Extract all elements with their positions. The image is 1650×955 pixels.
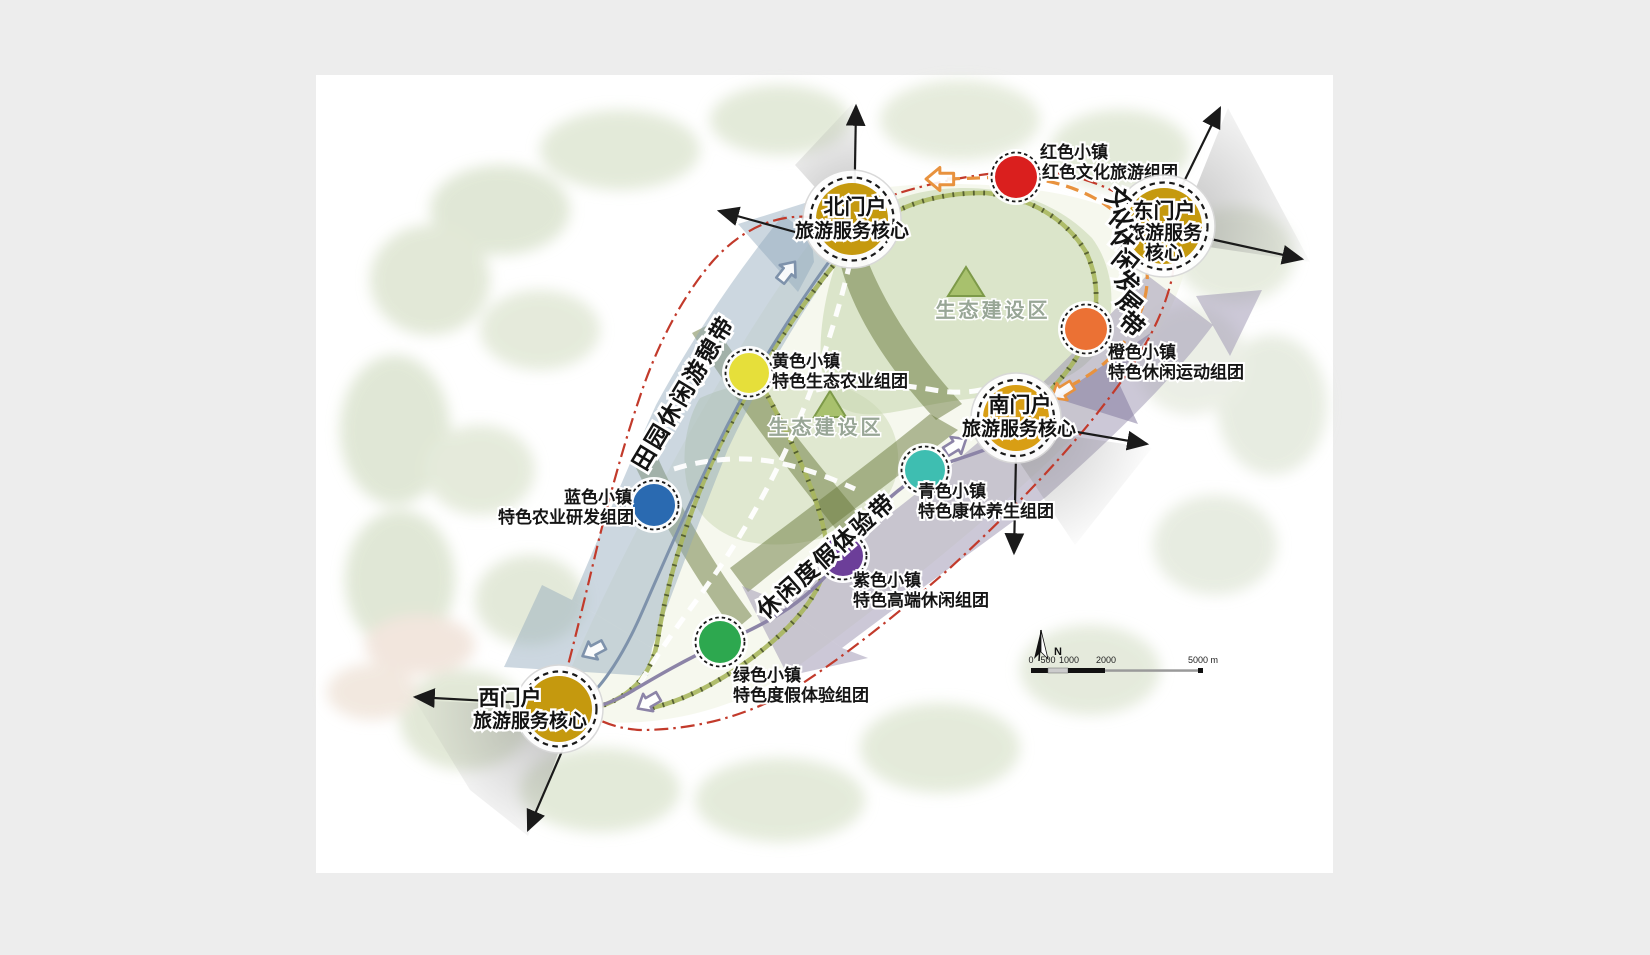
eco-zone-lower-label: 生态建设区	[769, 415, 884, 439]
eco-zone-upper-label: 生态建设区	[936, 298, 1051, 322]
town-blue-name: 蓝色小镇	[564, 487, 632, 507]
gateway-west-name: 西门户	[479, 686, 542, 710]
town-orange-name: 橙色小镇	[1108, 342, 1176, 362]
town-purple-desc: 特色高端休闲组团	[853, 590, 989, 610]
town-blue-desc: 特色农业研发组团	[498, 507, 634, 527]
planning-map-stage: 生态建设区 生态建设区 红色小镇 红色文化旅游组团 橙色小镇 特色休闲运动组团 …	[0, 0, 1650, 950]
town-green-desc: 特色度假体验组团	[733, 685, 869, 705]
gateway-south-sub: 旅游服务核心	[962, 417, 1076, 440]
town-green-name: 绿色小镇	[733, 665, 801, 685]
scale-tick-2000: 2000	[1096, 655, 1116, 665]
gateway-north-sub: 旅游服务核心	[795, 219, 909, 242]
scale-tick-500: 500	[1040, 655, 1055, 665]
gateway-west-sub: 旅游服务核心	[473, 709, 587, 732]
scale-tick-1000: 1000	[1059, 655, 1079, 665]
town-red-name: 红色小镇	[1040, 142, 1108, 162]
gateway-east-sub2: 核心	[1145, 241, 1183, 264]
town-yellow-desc: 特色生态农业组团	[772, 371, 908, 391]
gateway-east-name: 东门户	[1133, 199, 1196, 223]
town-yellow-name: 黄色小镇	[772, 351, 840, 371]
scale-tick-5000: 5000 m	[1188, 655, 1218, 665]
town-purple-name: 紫色小镇	[853, 570, 921, 590]
town-orange-desc: 特色休闲运动组团	[1108, 362, 1244, 382]
town-teal-name: 青色小镇	[918, 481, 986, 501]
planning-map-svg: 生态建设区 生态建设区 红色小镇 红色文化旅游组团 橙色小镇 特色休闲运动组团 …	[0, 0, 1650, 950]
town-teal-desc: 特色康体养生组团	[918, 501, 1054, 521]
gateway-east-sub1: 旅游服务	[1126, 221, 1203, 244]
scale-tick-0: 0	[1028, 655, 1033, 665]
gateway-south-name: 南门户	[989, 393, 1052, 417]
gateway-north-name: 北门户	[824, 195, 887, 219]
